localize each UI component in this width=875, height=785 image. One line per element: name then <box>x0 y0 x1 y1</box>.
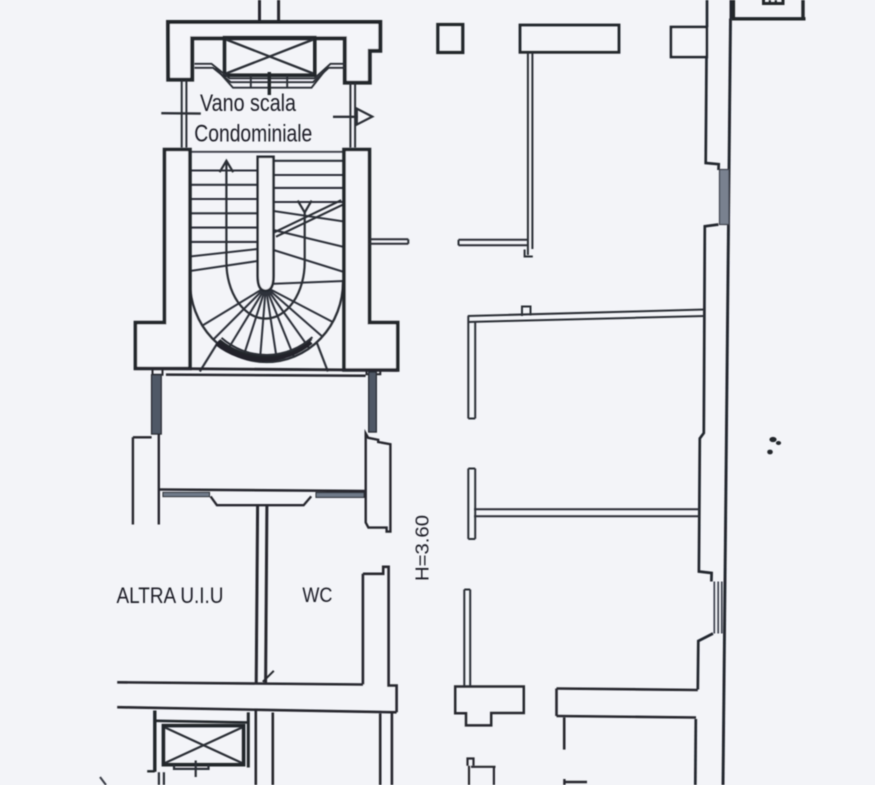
svg-text:Vano scala: Vano scala <box>200 90 297 117</box>
svg-text:H=3.60: H=3.60 <box>413 515 433 581</box>
svg-text:WC: WC <box>302 583 332 607</box>
svg-text:ALTRA U.I.U: ALTRA U.I.U <box>117 583 224 608</box>
svg-text:Condominiale: Condominiale <box>194 121 312 148</box>
